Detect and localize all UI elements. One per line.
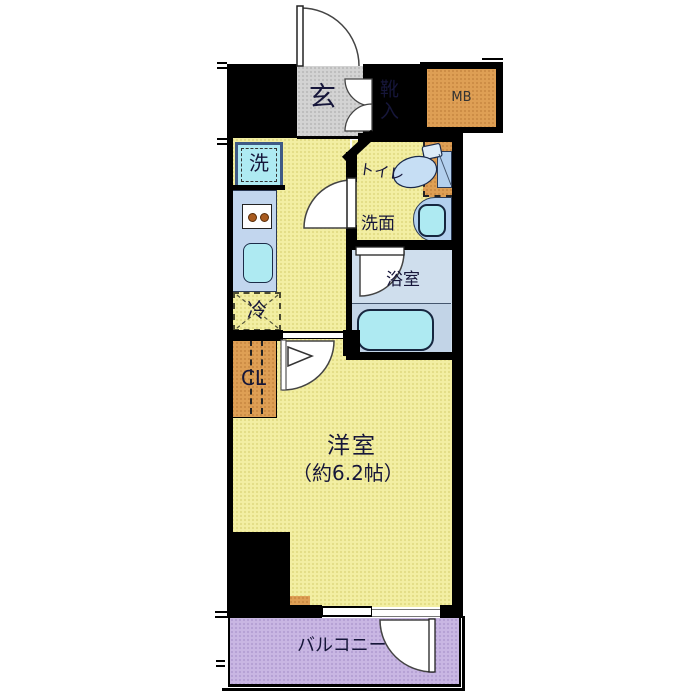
washroom-label: 洗面 [361,216,395,234]
wall-toilet-top [358,133,454,142]
washbasin-bowl [418,204,446,237]
pipe-space-panel [437,151,452,188]
balcony-outer-line-bottom [222,688,465,691]
room-size-label: （約6.2帖） [292,463,404,484]
fridge-label: 冷 [233,300,281,321]
genkan-step-line [297,136,363,139]
bathtub [357,309,434,351]
wall-room-top-left [227,330,283,341]
stove-burner-right [260,213,269,222]
wall-bottom-west [227,605,322,618]
closet-label: CL [230,368,277,389]
window-south [322,606,372,617]
wall-block-bottom-left [228,532,290,613]
kitchen-sink [243,243,273,283]
wall-tick-top-left [217,62,227,69]
washer-label: 洗 [235,153,283,174]
front-door-leaf [297,6,303,66]
wall-bathroom-bottom [346,352,454,360]
wall-tick-left-mid [217,138,227,145]
wall-tick-balcony-left [216,660,225,667]
wall-toilet-left-upper [346,152,357,182]
stove-burner-left [248,213,257,222]
floor-plan: 玄 靴入 MB 洗 冷 トイレ 洗面 浴室 CL 洋室 （約6.2帖） バルコニ… [0,0,700,700]
room-name-label: 洋室 [327,434,377,458]
meter-box-label: MB [427,91,496,105]
balcony-label: バルコニー [297,637,387,656]
wall-right [452,133,463,618]
bathroom-label: 浴室 [386,272,420,290]
wall-tick-bottom-left [215,611,227,618]
wall-room-top-right [343,330,360,356]
balcony-outer-line-right [462,616,465,691]
balcony-door-threshold [372,609,440,617]
wall-bottom-east [440,605,463,618]
genkan-label: 玄 [309,84,336,112]
wall-top-left-block [227,64,297,138]
front-door-arc [301,8,359,66]
wall-tick-meter-box [482,58,503,65]
kitchen-washer-divider [231,185,285,190]
shoe-box-label: 靴入 [377,79,397,123]
room-door-opening-band [283,331,343,339]
wall-washroom-bathroom [346,240,454,250]
